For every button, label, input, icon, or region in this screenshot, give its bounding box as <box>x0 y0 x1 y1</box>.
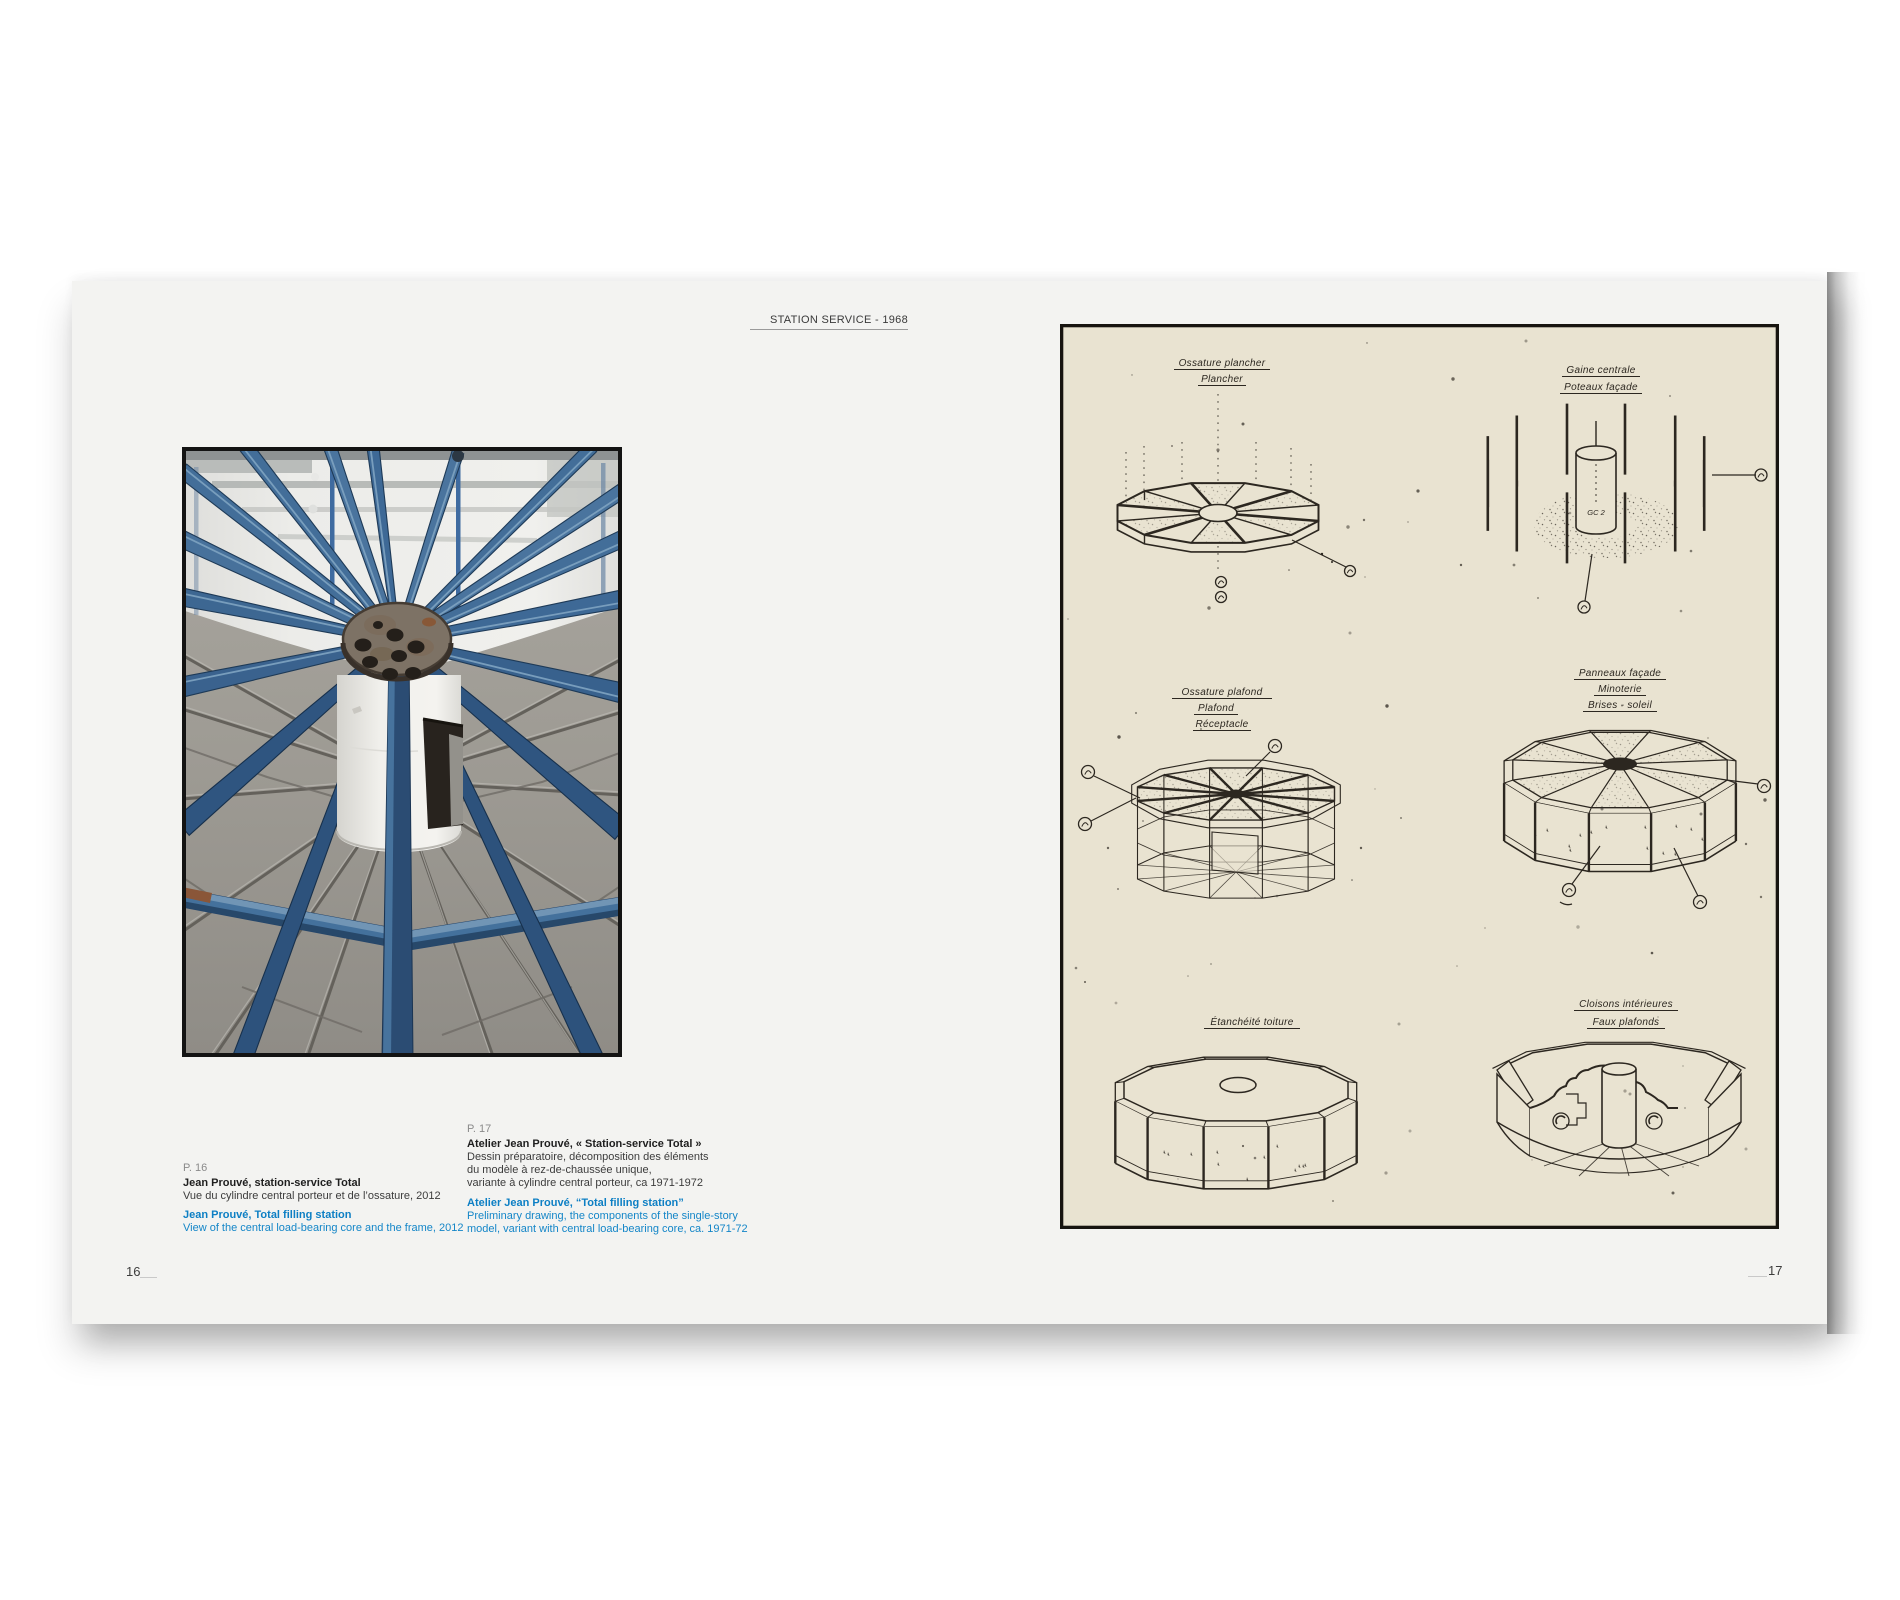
svg-text:Panneaux façade: Panneaux façade <box>1579 668 1661 679</box>
svg-text:Ossature plancher: Ossature plancher <box>1179 358 1266 369</box>
svg-text:Réceptacle: Réceptacle <box>1195 719 1248 730</box>
svg-text:Poteaux façade: Poteaux façade <box>1564 382 1638 393</box>
svg-text:Étanchéité toiture: Étanchéité toiture <box>1210 1015 1293 1028</box>
svg-text:Gaine centrale: Gaine centrale <box>1566 365 1635 376</box>
svg-text:GC 2: GC 2 <box>1587 508 1605 517</box>
svg-text:Ossature plafond: Ossature plafond <box>1182 687 1263 698</box>
svg-text:Faux plafonds: Faux plafonds <box>1593 1017 1660 1028</box>
svg-text:Minoterie: Minoterie <box>1598 684 1642 695</box>
svg-text:Brises - soleil: Brises - soleil <box>1588 700 1652 711</box>
svg-text:Plafond: Plafond <box>1198 703 1234 714</box>
svg-text:Cloisons intérieures: Cloisons intérieures <box>1579 999 1673 1010</box>
svg-text:Plancher: Plancher <box>1201 374 1243 385</box>
